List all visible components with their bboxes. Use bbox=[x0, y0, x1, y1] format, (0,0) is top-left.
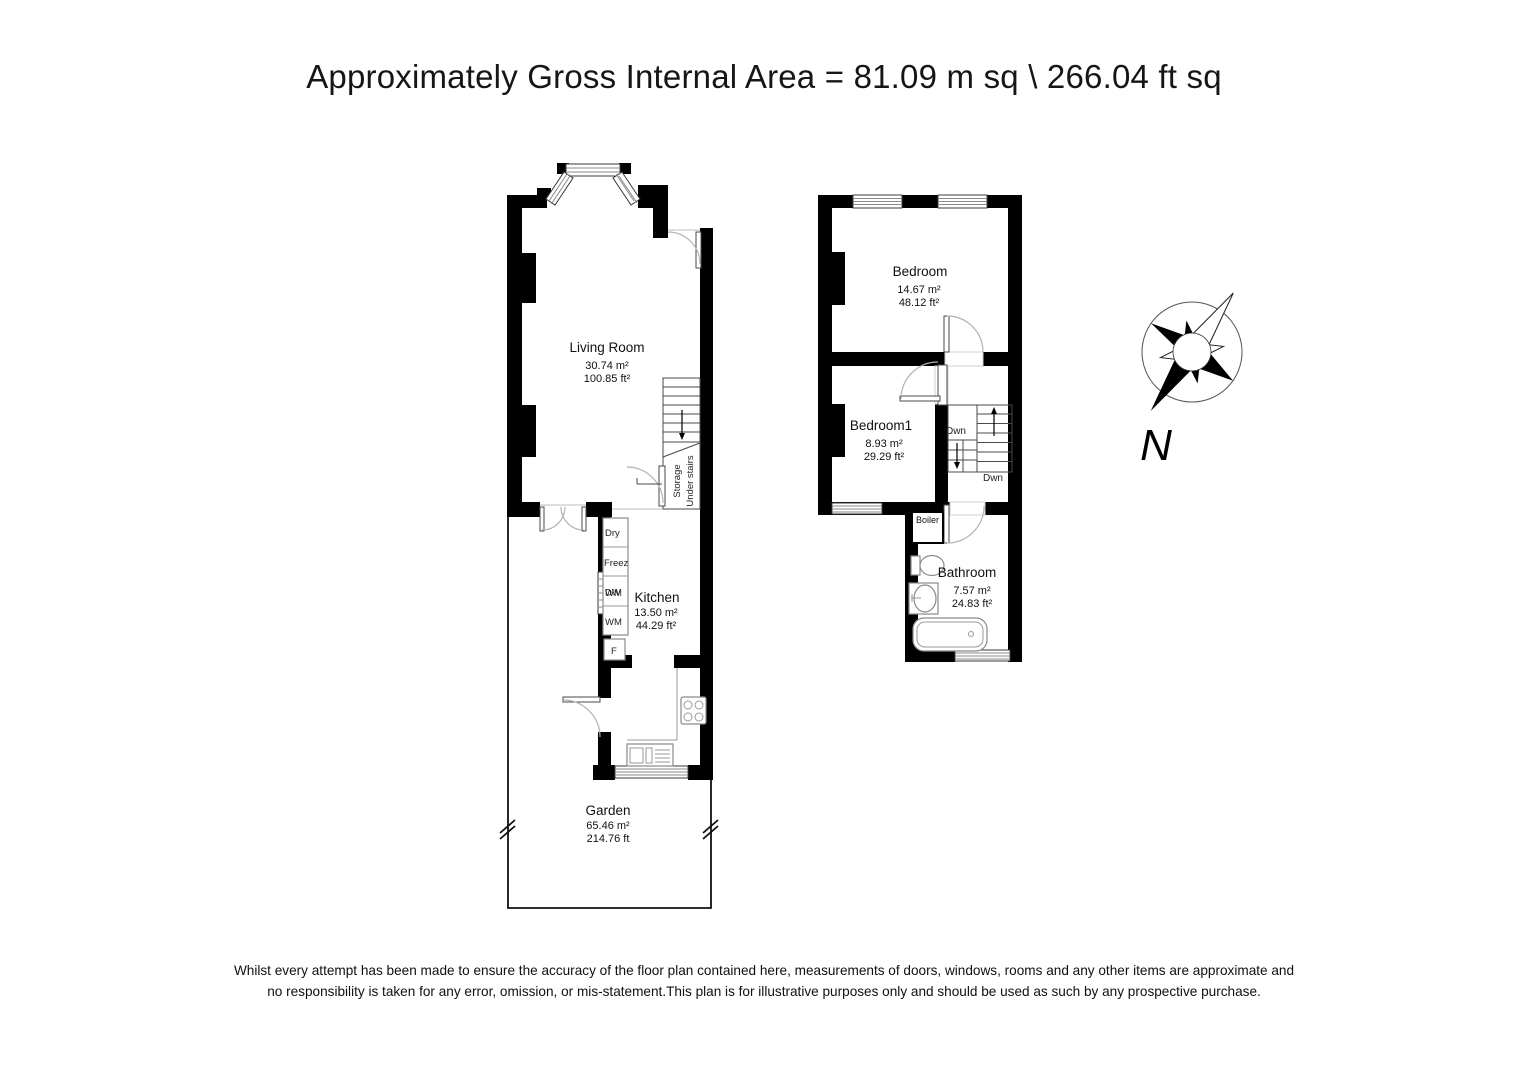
bathroom-area-ft: 24.83 ft² bbox=[952, 598, 993, 610]
bedroom1-window bbox=[832, 503, 882, 514]
bathtub bbox=[913, 618, 987, 651]
bathroom-area-m: 7.57 m² bbox=[953, 585, 991, 597]
kitchen-sink bbox=[627, 744, 673, 766]
wall-pier bbox=[832, 252, 845, 305]
disclaimer-line1: Whilst every attempt has been made to en… bbox=[0, 960, 1528, 981]
front-door bbox=[668, 230, 701, 268]
hall-door bbox=[627, 466, 665, 506]
ground-floor-stairs bbox=[663, 378, 700, 442]
boiler: Boiler bbox=[912, 512, 943, 543]
floorplan-page: Approximately Gross Internal Area = 81.0… bbox=[0, 0, 1528, 1080]
kitchen-appliances: Dry Freez WM x DW WM F bbox=[603, 518, 629, 660]
bay-window-center-pane bbox=[566, 164, 620, 176]
bedroom-area-ft: 48.12 ft² bbox=[899, 297, 940, 309]
living-room-area-m: 30.74 m² bbox=[585, 360, 629, 372]
appliance-dryer-label: Dry bbox=[605, 528, 620, 539]
living-room-area-ft: 100.85 ft² bbox=[584, 373, 631, 385]
stairs-dwn-label-lower: Dwn bbox=[983, 473, 1003, 484]
bedroom-label: Bedroom bbox=[893, 264, 948, 279]
bathroom-door bbox=[944, 502, 985, 543]
bedroom-window-left bbox=[853, 195, 902, 208]
kitchen-area-ft: 44.29 ft² bbox=[636, 620, 677, 632]
kitchen-hob bbox=[681, 697, 706, 724]
bedroom-area-m: 14.67 m² bbox=[897, 284, 941, 296]
garden-area-m: 65.46 m² bbox=[586, 820, 630, 832]
stairs-dwn-label-upper: Dwn bbox=[946, 426, 966, 437]
disclaimer-line2: no responsibility is taken for any error… bbox=[0, 981, 1528, 1002]
first-floor-stairs: Dwn Dwn bbox=[946, 405, 1012, 484]
kitchen-side-door bbox=[563, 697, 600, 737]
appliance-freezer-label: Freez bbox=[604, 558, 629, 569]
appliance-dw-label: DW bbox=[605, 588, 621, 599]
understairs-storage: Under stairs Storage bbox=[663, 442, 700, 509]
ground-floor-plan: Under stairs Storage bbox=[500, 163, 718, 908]
garden-double-doors bbox=[540, 505, 586, 531]
bedroom1-label: Bedroom1 bbox=[850, 418, 912, 433]
kitchen-area-m: 13.50 m² bbox=[634, 607, 678, 619]
compass-rose: N bbox=[1140, 293, 1242, 470]
boiler-label: Boiler bbox=[916, 515, 939, 525]
kitchen-label: Kitchen bbox=[634, 590, 679, 605]
bedroom1-area-m: 8.93 m² bbox=[865, 438, 903, 450]
bedroom1-area-ft: 29.29 ft² bbox=[864, 451, 905, 463]
bathroom-window bbox=[955, 650, 1010, 661]
understairs-label-line2: Storage bbox=[672, 464, 683, 497]
appliance-wm-label: WM bbox=[605, 617, 622, 628]
understairs-label-line1: Under stairs bbox=[685, 455, 696, 506]
bathroom-label: Bathroom bbox=[938, 565, 997, 580]
compass-north-label: N bbox=[1140, 421, 1172, 470]
appliance-fridge-label: F bbox=[611, 646, 617, 657]
wall-pier bbox=[522, 253, 536, 303]
bedroom1-door bbox=[900, 362, 948, 405]
bay-window-right-pane bbox=[613, 172, 640, 205]
first-floor-plan: Dwn Dwn Boiler bbox=[818, 195, 1022, 662]
bedroom-door bbox=[944, 316, 983, 366]
bathroom-sink bbox=[909, 583, 938, 614]
bedroom-window-right bbox=[938, 195, 987, 208]
kitchen-counter bbox=[627, 668, 677, 740]
floorplan-drawing: Under stairs Storage bbox=[0, 0, 1528, 1080]
garden-label: Garden bbox=[585, 803, 630, 818]
kitchen-rear-window bbox=[615, 766, 688, 778]
wall-pier bbox=[832, 404, 845, 457]
living-room-label: Living Room bbox=[569, 340, 644, 355]
wall-pier bbox=[522, 405, 536, 457]
garden-area-ft: 214.76 ft bbox=[587, 833, 630, 845]
disclaimer: Whilst every attempt has been made to en… bbox=[0, 960, 1528, 1002]
